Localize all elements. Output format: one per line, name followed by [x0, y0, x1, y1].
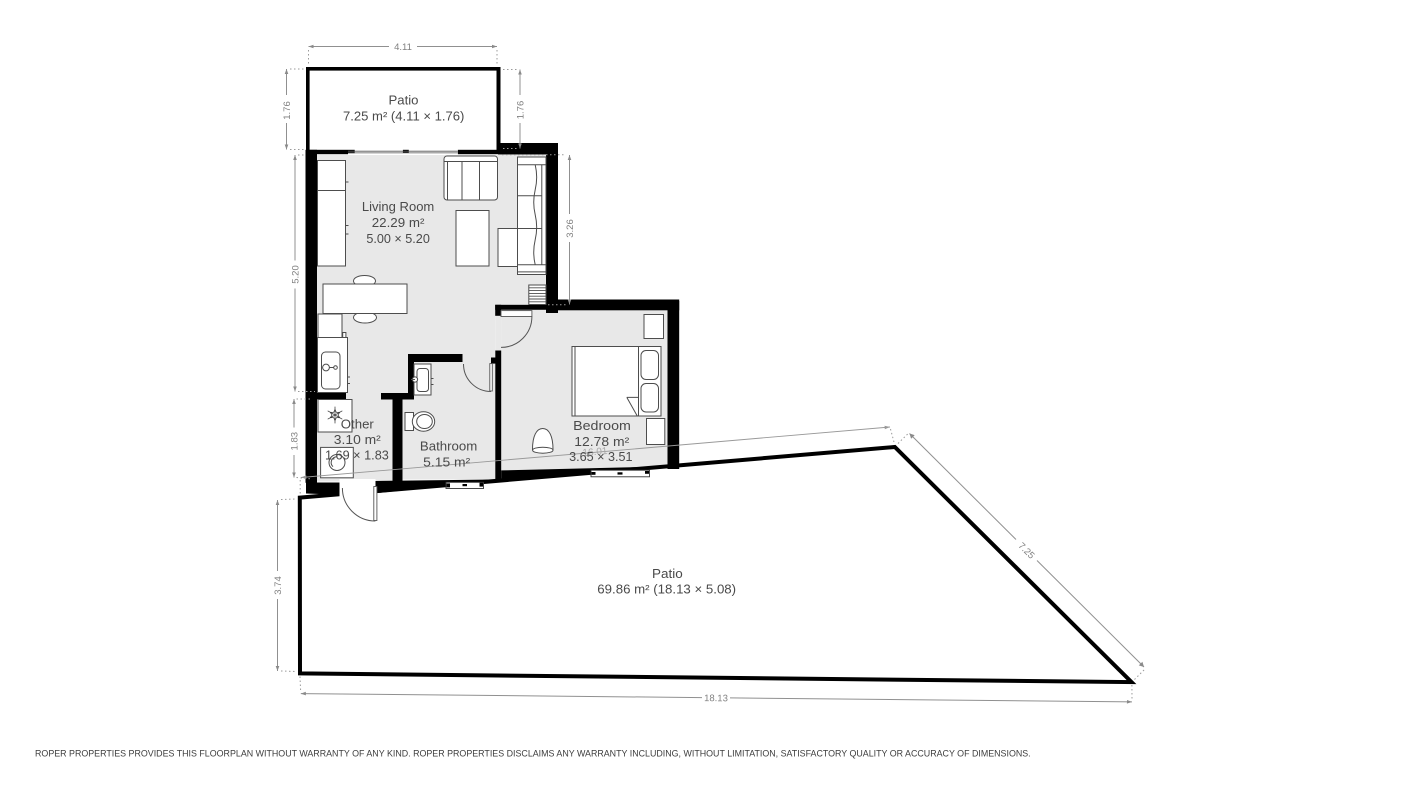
svg-text:5.00 × 5.20: 5.00 × 5.20	[366, 231, 430, 246]
svg-text:18.13: 18.13	[704, 693, 728, 704]
svg-text:1.83: 1.83	[290, 432, 301, 451]
svg-text:22.29 m²: 22.29 m²	[372, 215, 425, 230]
svg-text:Patio: Patio	[389, 93, 419, 108]
svg-text:ROPER PROPERTIES PROVIDES THIS: ROPER PROPERTIES PROVIDES THIS FLOORPLAN…	[35, 749, 1031, 759]
svg-text:1.76: 1.76	[516, 101, 527, 120]
svg-text:5.15 m²: 5.15 m²	[423, 454, 471, 469]
svg-text:12.78 m²: 12.78 m²	[574, 434, 630, 449]
svg-text:Bedroom: Bedroom	[573, 418, 631, 433]
svg-text:4.11: 4.11	[394, 42, 412, 53]
svg-text:Patio: Patio	[652, 566, 683, 581]
svg-text:Bathroom: Bathroom	[420, 438, 477, 453]
svg-text:1.76: 1.76	[282, 101, 293, 120]
svg-text:Living Room: Living Room	[362, 199, 434, 214]
svg-text:3.10 m²: 3.10 m²	[334, 432, 382, 447]
svg-text:3.26: 3.26	[565, 219, 576, 238]
svg-text:69.86 m² (18.13 × 5.08): 69.86 m² (18.13 × 5.08)	[597, 581, 736, 596]
svg-text:3.65 × 3.51: 3.65 × 3.51	[569, 449, 632, 464]
svg-text:3.74: 3.74	[273, 576, 284, 595]
svg-text:7.25: 7.25	[1016, 541, 1037, 562]
svg-text:5.20: 5.20	[291, 265, 302, 284]
svg-text:1.69 × 1.83: 1.69 × 1.83	[325, 447, 389, 462]
svg-text:Other: Other	[341, 416, 375, 431]
svg-text:7.25 m² (4.11 × 1.76): 7.25 m² (4.11 × 1.76)	[343, 109, 464, 124]
